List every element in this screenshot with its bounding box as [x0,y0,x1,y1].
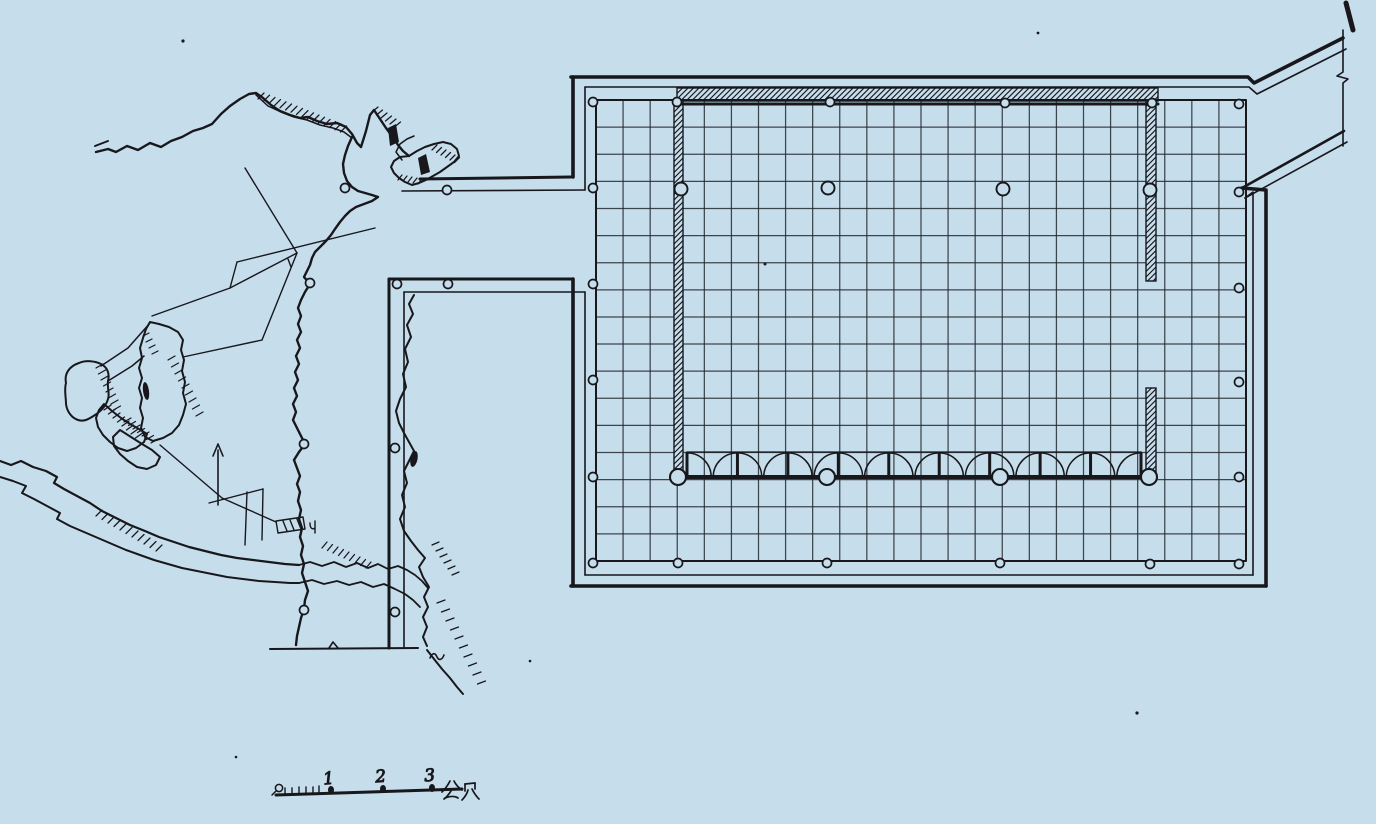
rock-connector-a [101,323,150,366]
sheet-corner-mark [1346,3,1353,30]
scale-label-3: 3 [424,766,436,787]
rock-hatch-shading [96,93,486,684]
inner-wall-top-and-upper-passage [585,49,1346,94]
garden-plan-drawing: 0 1 2 3 [0,0,1376,824]
rock-central-pillar [139,322,186,441]
rock-kidney-boulder [65,361,109,420]
shore-rocks-upper [299,562,428,588]
corridor-top-outer [420,177,571,179]
rock-ridge-outline [96,93,409,156]
plan-sheet: 0 1 2 3 [0,0,1376,824]
west-corridor-and-l-wall [270,177,585,649]
rock-ridge-dash [95,141,108,146]
column-circles [300,98,1244,617]
scale-label-1: 1 [322,769,335,790]
outer-wall-top-and-upper-passage [571,38,1343,83]
rock-dark-accents [142,124,430,468]
passage-lower-outer-line [1242,131,1344,188]
scale-label-2: 2 [374,767,387,788]
shoreline-lower [0,477,299,583]
rock-edge-inside-l-wall [396,295,429,646]
rock-lobe-a [96,404,147,451]
hatched-walls [674,88,1158,473]
gate-mark [276,517,315,533]
passage-break-line [1337,30,1348,146]
rock-se-coast [427,650,463,694]
rock-south-edge [293,137,378,645]
corridor-top-inner [402,190,585,191]
arched-screen-row [683,452,1143,477]
north-arrow [213,444,223,505]
shore-rocks-lower [299,580,420,607]
scale-bar: 0 1 2 3 [272,766,479,800]
rock-facet-lines [152,168,375,545]
l-wall-end-tick [329,642,338,648]
l-wall-end-line [270,648,418,649]
rockery [0,93,486,694]
passage-lower-inner-line [1245,142,1347,198]
